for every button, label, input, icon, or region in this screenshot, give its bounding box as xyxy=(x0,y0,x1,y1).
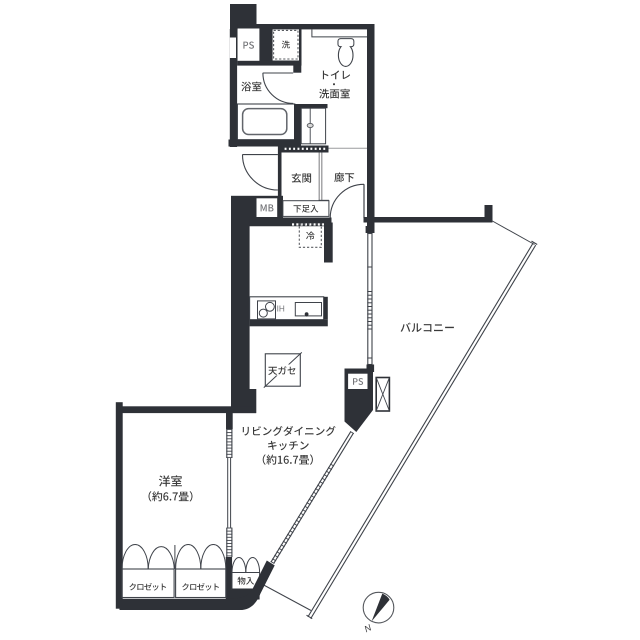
svg-text:IH: IH xyxy=(277,304,285,313)
